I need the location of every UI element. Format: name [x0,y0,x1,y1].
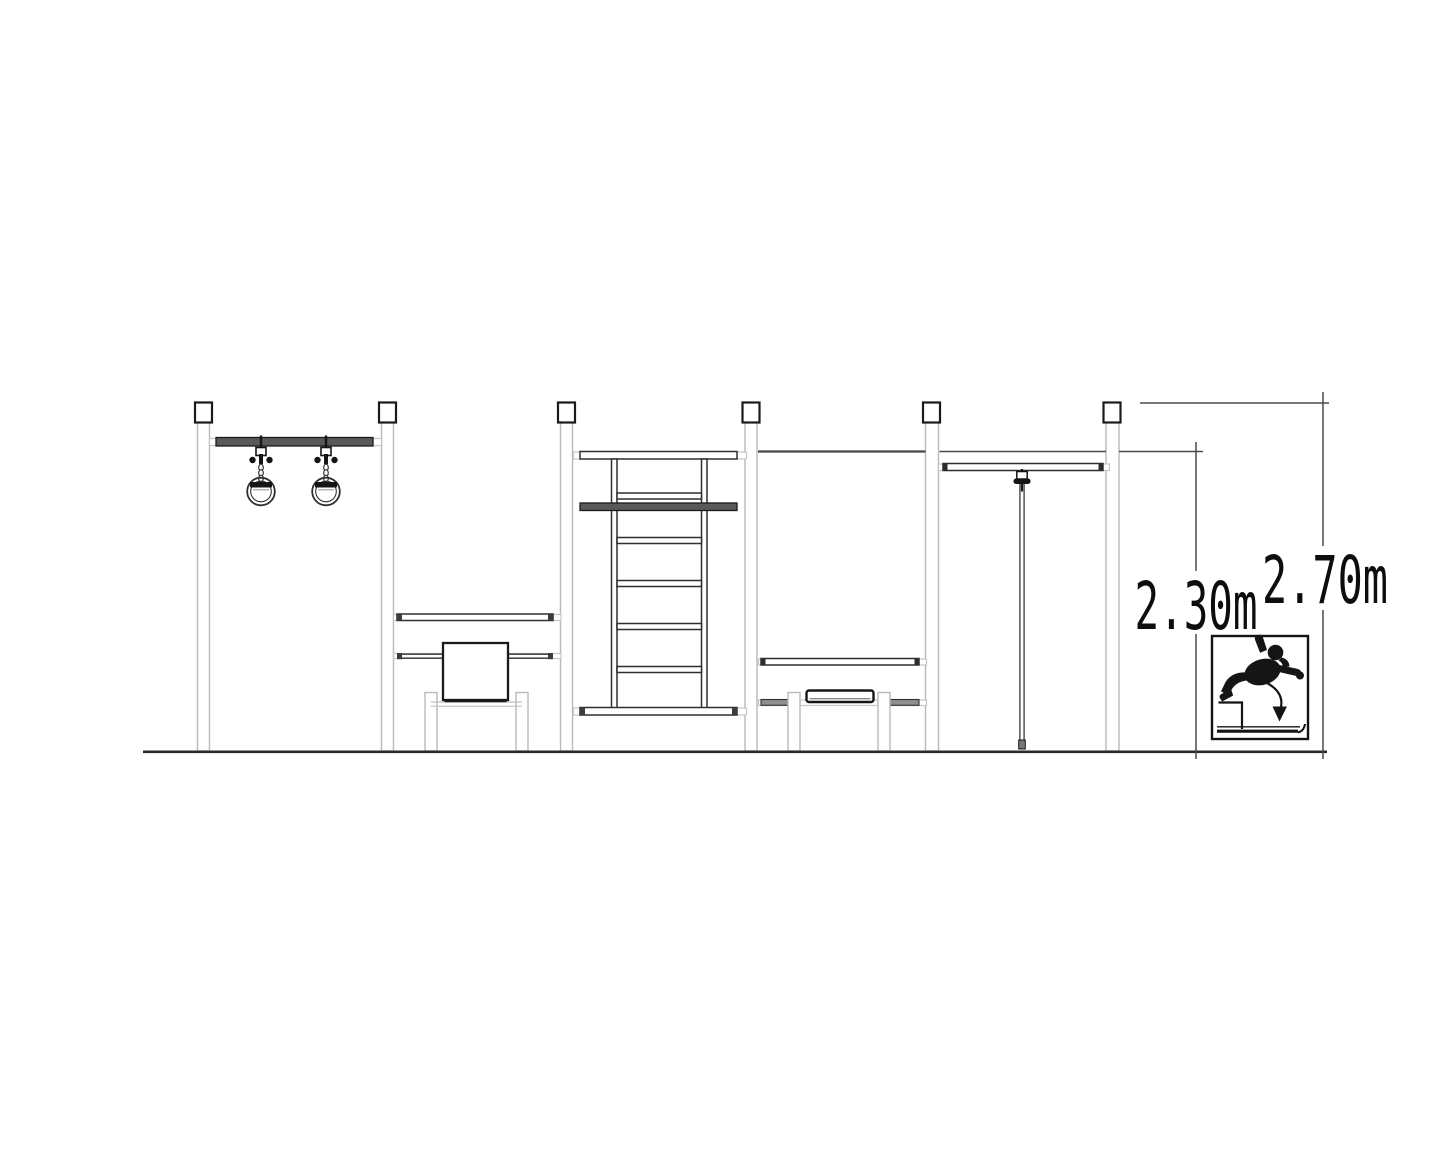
ladder-station [574,452,747,716]
post-2-body [382,421,394,751]
bench-leg-left [425,693,437,752]
ladder-rung-2 [617,538,702,544]
low-rail-right [890,700,919,706]
climbing-pole-station [939,464,1110,750]
dimension-label-2-30m: 2.30m [1135,568,1258,645]
fall-height-warning-icon [1212,635,1308,739]
bench-station [394,614,562,751]
dimension-bar-height: 2.30m [940,442,1258,759]
low-support-right [878,693,890,752]
low-bars-station [758,452,927,752]
ladder-rung-1 [617,493,702,499]
post-3 [558,403,575,752]
pole-anchor [1019,740,1026,749]
ladder-rail-right [702,459,708,709]
fitness-equipment-elevation: 2.30m 2.70m [0,0,1445,1156]
bench-leg-right [516,693,528,752]
post-1 [195,403,212,752]
ladder-rung-3 [617,581,702,587]
low-bench-top [807,691,874,703]
gym-rings-station [210,436,382,506]
post-2-cap [379,403,396,423]
pole-clamp [1017,472,1027,480]
post-5-cap [923,403,940,423]
rings-beam [216,438,373,447]
post-4-cap [743,403,760,423]
dimension-label-2-70m: 2.70m [1262,542,1388,619]
bench-board [443,643,508,700]
post-2 [379,403,396,752]
bench-top-bar [397,614,553,621]
elevation-drawing-page: 2.30m 2.70m [0,0,1445,1156]
post-3-cap [558,403,575,423]
ladder-plate-mid [580,503,737,511]
post-5 [923,403,940,752]
post-6 [1104,403,1121,752]
ladder-rail-left [612,459,618,709]
post-5-body [926,421,939,751]
post-1-cap [195,403,212,423]
post-4-body [745,421,757,751]
low-bar [761,659,919,666]
ladder-plate-top [580,452,737,460]
post-3-body [561,421,573,751]
low-support-left [788,693,800,752]
ladder-rung-4 [617,624,702,630]
ladder-plate-bottom [580,708,737,716]
post-1-body [198,421,210,751]
ladder-rung-5 [617,667,702,673]
post-6-cap [1104,403,1121,423]
low-rail-left [761,700,788,706]
